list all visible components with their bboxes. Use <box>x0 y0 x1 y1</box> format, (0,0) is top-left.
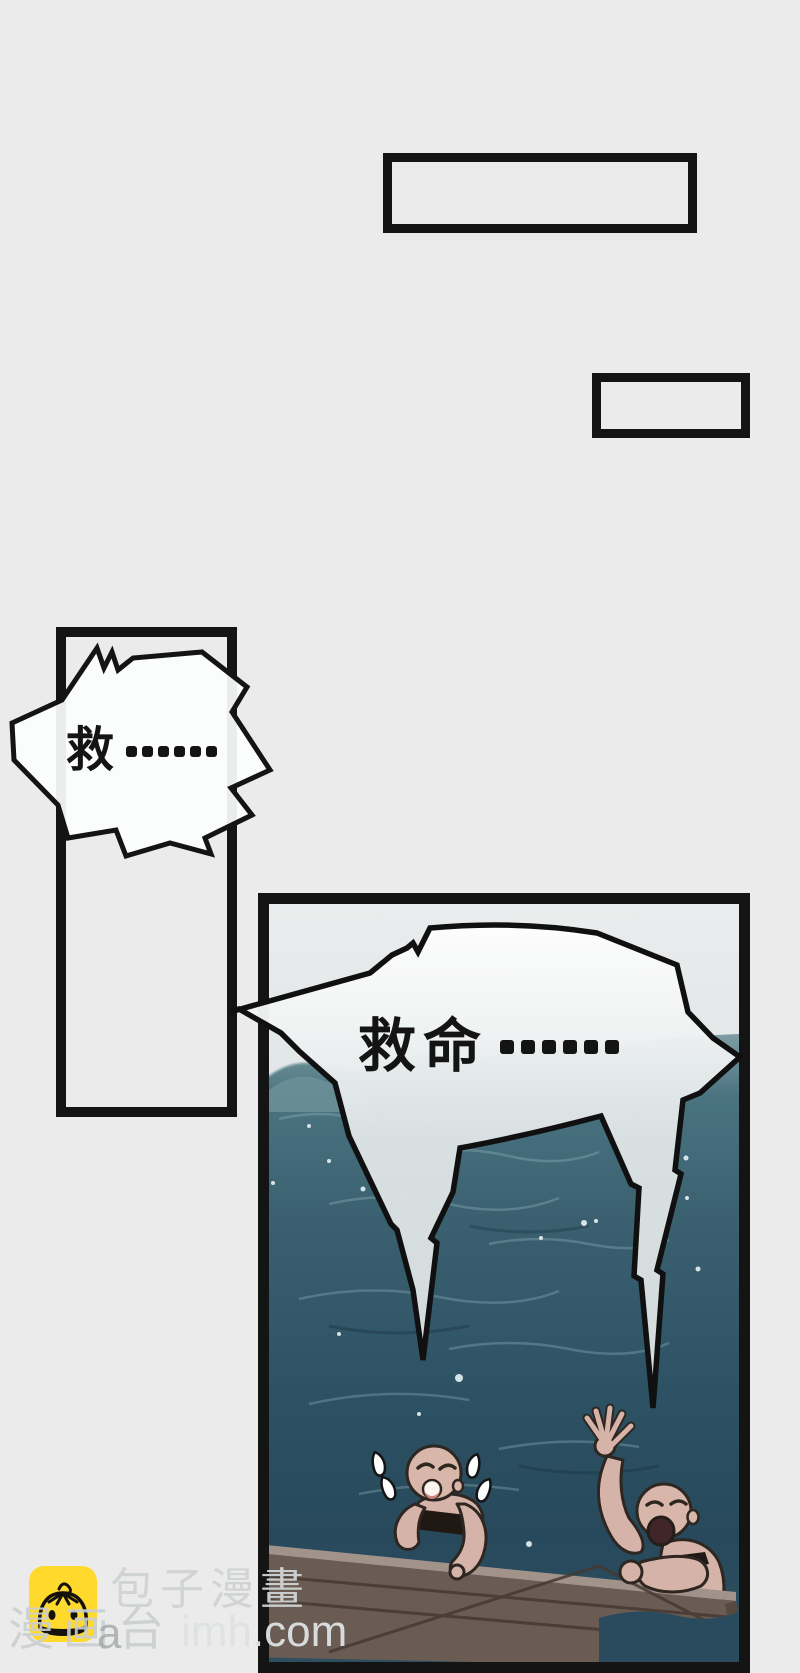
bubble-main-text: 救命 <box>358 1002 626 1092</box>
bubble-left-char: 救 <box>66 727 114 775</box>
watermark-overlap-letter: a <box>97 1612 121 1656</box>
panel-empty-small <box>592 373 750 438</box>
bun-app-icon <box>28 1565 98 1643</box>
bun-pleats <box>49 1584 77 1604</box>
panel-empty-top <box>383 153 697 233</box>
ellipsis-dots <box>500 1040 626 1054</box>
bubble-left-text: 救 <box>66 722 222 780</box>
ellipsis-dots <box>126 746 222 757</box>
comic-page: 救 救命 包子漫畫 漫画台 a imh.com <box>0 0 800 1673</box>
watermark-platform: 漫画台 <box>8 1606 173 1652</box>
bubble-main-chars: 救命 <box>358 1018 488 1076</box>
